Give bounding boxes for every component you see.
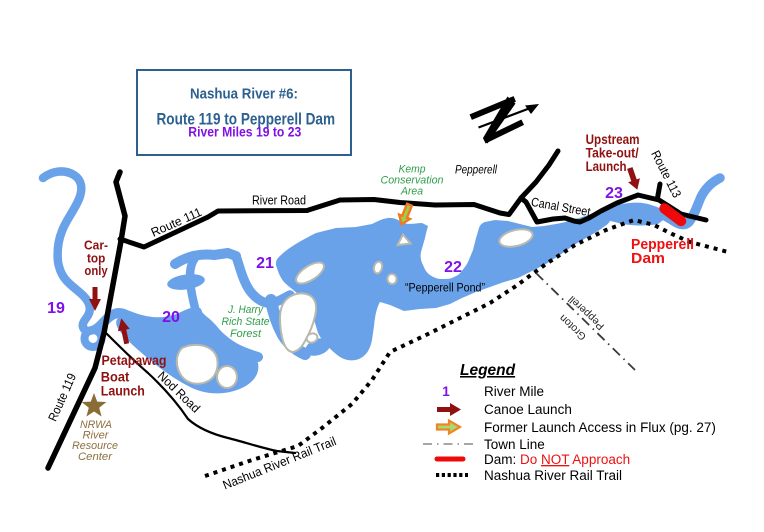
svg-text:Nashua River Rail Trail: Nashua River Rail Trail [221,434,338,492]
svg-text:1: 1 [442,384,450,399]
svg-text:Rich State: Rich State [222,316,270,328]
svg-text:Center: Center [78,451,113,463]
svg-text:only: only [84,263,108,278]
svg-text:Nashua River Rail Trail: Nashua River Rail Trail [484,468,622,483]
svg-text:Petapawag: Petapawag [102,353,167,368]
svg-text:Forest: Forest [230,328,262,340]
svg-text:21: 21 [256,255,274,272]
svg-text:Town Line: Town Line [484,437,545,452]
svg-text:Dam: Do NOT Approach: Dam: Do NOT Approach [484,452,630,467]
svg-text:Route 113: Route 113 [648,148,684,200]
svg-text:River Miles 19 to 23: River Miles 19 to 23 [188,125,301,140]
svg-text:22: 22 [444,259,462,276]
svg-text:Dam: Dam [631,251,665,267]
svg-text:Canoe Launch: Canoe Launch [484,402,572,417]
svg-text:Former Launch Access in Flux (: Former Launch Access in Flux (pg. 27) [484,420,716,435]
svg-text:19: 19 [47,300,65,317]
svg-text:Launch: Launch [101,384,145,399]
svg-text:Pepperell: Pepperell [455,165,497,177]
svg-text:J. Harry: J. Harry [227,304,264,316]
svg-text:“Pepperell Pond”: “Pepperell Pond” [405,283,485,295]
svg-text:20: 20 [162,309,180,326]
svg-text:Area: Area [400,186,423,198]
svg-text:Legend: Legend [460,362,516,379]
svg-text:Nashua River #6:: Nashua River #6: [190,87,298,103]
svg-text:Launch: Launch [586,159,627,174]
svg-text:Boat: Boat [101,370,130,385]
svg-text:23: 23 [605,185,623,202]
svg-text:River Mile: River Mile [484,384,544,399]
svg-text:River Road: River Road [252,194,306,208]
svg-text:Canal Street: Canal Street [530,195,592,219]
